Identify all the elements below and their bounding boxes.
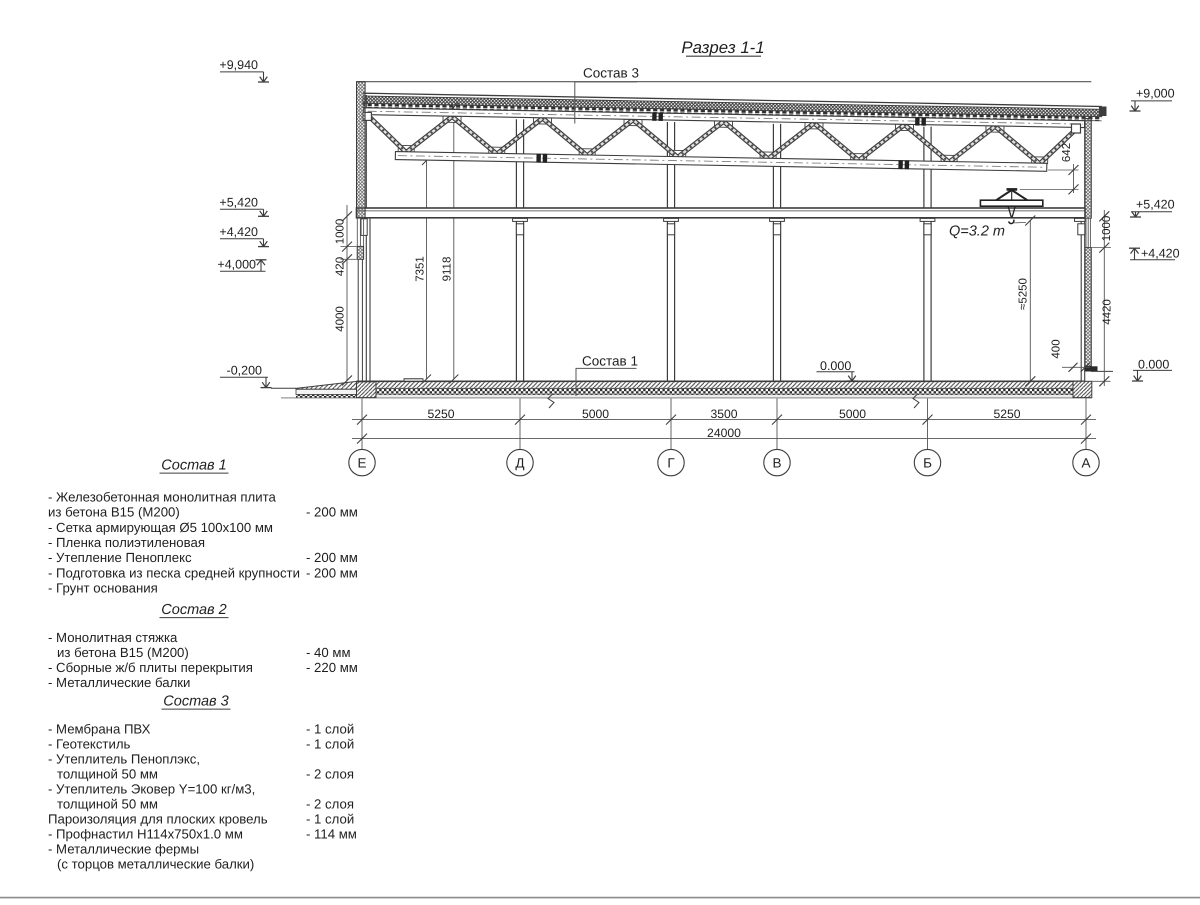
svg-text:- Металлические фермы: - Металлические фермы bbox=[48, 842, 199, 857]
svg-text:- 114 мм: - 114 мм bbox=[306, 827, 357, 842]
svg-text:+4,000: +4,000 bbox=[217, 258, 256, 272]
svg-text:- 2 слоя: - 2 слоя bbox=[306, 797, 354, 812]
svg-text:5250: 5250 bbox=[993, 407, 1020, 421]
svg-text:420: 420 bbox=[335, 257, 347, 276]
svg-text:+9,940: +9,940 bbox=[219, 58, 258, 72]
svg-text:0.000: 0.000 bbox=[1138, 357, 1169, 371]
svg-text:+5,420: +5,420 bbox=[219, 196, 258, 210]
svg-text:- 1 слой: - 1 слой bbox=[306, 737, 354, 752]
svg-text:Состав 1: Состав 1 bbox=[582, 354, 638, 369]
svg-text:Е: Е bbox=[357, 455, 366, 470]
svg-text:7351: 7351 bbox=[414, 256, 426, 282]
svg-text:- 220 мм: - 220 мм bbox=[306, 660, 358, 675]
svg-text:Состав 1: Состав 1 bbox=[161, 458, 226, 474]
svg-text:24000: 24000 bbox=[707, 426, 741, 440]
svg-text:- Пленка полиэтиленовая: - Пленка полиэтиленовая bbox=[48, 535, 205, 550]
svg-text:- Металлические балки: - Металлические балки bbox=[48, 675, 190, 690]
svg-text:Пароизоляция для плоских крове: Пароизоляция для плоских кровель bbox=[48, 812, 268, 827]
svg-text:- 200 мм: - 200 мм bbox=[306, 566, 358, 581]
svg-text:толщиной 50 мм: толщиной 50 мм bbox=[57, 767, 158, 782]
svg-text:0.000: 0.000 bbox=[820, 359, 851, 373]
svg-text:- Грунт основания: - Грунт основания bbox=[48, 581, 158, 596]
svg-text:- 200 мм: - 200 мм bbox=[306, 550, 358, 565]
svg-text:+4,420: +4,420 bbox=[219, 225, 258, 239]
svg-text:5000: 5000 bbox=[839, 407, 866, 421]
svg-text:5250: 5250 bbox=[427, 407, 454, 421]
svg-text:- Утепление Пеноплекс: - Утепление Пеноплекс bbox=[48, 550, 192, 565]
svg-text:- 1 слой: - 1 слой bbox=[306, 812, 354, 827]
svg-text:+4,420: +4,420 bbox=[1141, 247, 1180, 261]
svg-text:9118: 9118 bbox=[442, 257, 454, 282]
svg-text:- Подготовка из песка средней: - Подготовка из песка средней крупности bbox=[48, 566, 300, 581]
svg-text:Д: Д bbox=[515, 455, 524, 470]
svg-text:- 1 слой: - 1 слой bbox=[306, 722, 354, 737]
svg-text:Состав 3: Состав 3 bbox=[583, 66, 639, 81]
svg-text:- Профнастил Н114х750х1.0 мм: - Профнастил Н114х750х1.0 мм bbox=[48, 827, 243, 842]
svg-text:- 200 мм: - 200 мм bbox=[306, 505, 358, 520]
svg-text:3500: 3500 bbox=[710, 407, 737, 421]
svg-text:+9,000: +9,000 bbox=[1136, 87, 1175, 101]
svg-text:-0,200: -0,200 bbox=[227, 364, 262, 378]
svg-text:- Геотекстиль: - Геотекстиль bbox=[48, 737, 131, 752]
svg-text:толщиной 50 мм: толщиной 50 мм bbox=[57, 797, 158, 812]
svg-text:- Монолитная стяжка: - Монолитная стяжка bbox=[48, 630, 178, 645]
svg-text:(с торцов металлические балки): (с торцов металлические балки) bbox=[57, 857, 254, 872]
svg-text:- Мембрана ПВХ: - Мембрана ПВХ bbox=[48, 722, 151, 737]
svg-text:642: 642 bbox=[1061, 143, 1073, 162]
svg-text:из бетона В15 (М200): из бетона В15 (М200) bbox=[57, 645, 189, 660]
svg-text:- 2 слоя: - 2 слоя bbox=[306, 767, 354, 782]
svg-text:- Сетка армирующая Ø5 100х100: - Сетка армирующая Ø5 100х100 мм bbox=[48, 520, 273, 535]
svg-text:1000: 1000 bbox=[335, 219, 347, 245]
svg-text:В: В bbox=[772, 455, 781, 470]
svg-text:- Сборные ж/б плиты перекрытия: - Сборные ж/б плиты перекрытия bbox=[48, 660, 253, 675]
svg-text:- Утеплитель Пеноплэкс,: - Утеплитель Пеноплэкс, bbox=[48, 752, 200, 767]
svg-text:4000: 4000 bbox=[335, 306, 347, 332]
svg-text:+5,420: +5,420 bbox=[1136, 197, 1175, 211]
svg-text:5000: 5000 bbox=[582, 407, 609, 421]
svg-text:Разрез 1-1: Разрез 1-1 bbox=[681, 38, 764, 57]
svg-text:из бетона В15 (М200): из бетона В15 (М200) bbox=[48, 505, 180, 520]
svg-text:- Утеплитель Эковер Y=100 кг/м: - Утеплитель Эковер Y=100 кг/м3, bbox=[48, 782, 255, 797]
svg-text:Г: Г bbox=[667, 455, 675, 470]
svg-text:Состав 3: Состав 3 bbox=[163, 694, 228, 710]
svg-text:≈5250: ≈5250 bbox=[1018, 278, 1030, 310]
svg-text:- 40 мм: - 40 мм bbox=[306, 645, 351, 660]
svg-text:Q=3.2 m: Q=3.2 m bbox=[949, 224, 1005, 240]
svg-text:А: А bbox=[1081, 455, 1090, 470]
svg-text:Б: Б bbox=[923, 455, 932, 470]
svg-text:400: 400 bbox=[1051, 339, 1063, 358]
svg-text:4420: 4420 bbox=[1102, 299, 1114, 325]
svg-text:1000: 1000 bbox=[1101, 216, 1113, 242]
svg-text:- Железобетонная монолитная п: - Железобетонная монолитная плита bbox=[48, 490, 277, 505]
svg-text:Состав 2: Состав 2 bbox=[161, 602, 226, 618]
